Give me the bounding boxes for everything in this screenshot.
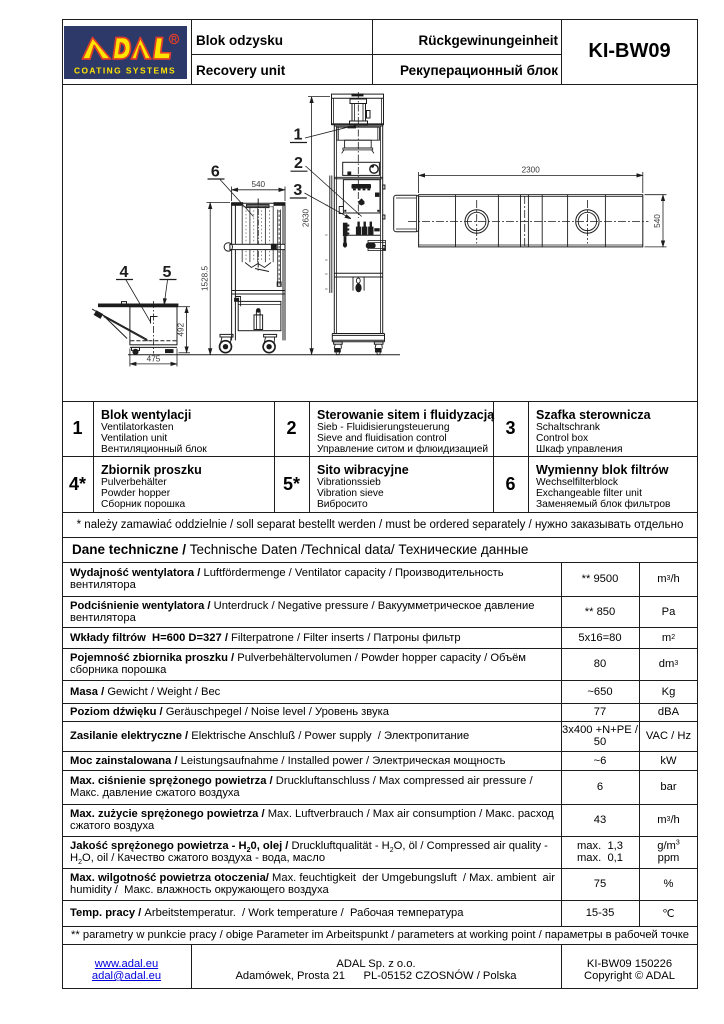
svg-text:3: 3 — [293, 182, 302, 199]
svg-text:540: 540 — [653, 214, 662, 228]
svg-text:6: 6 — [211, 164, 220, 181]
svg-text:5: 5 — [162, 264, 171, 281]
svg-text:2: 2 — [294, 155, 303, 172]
svg-text:2630: 2630 — [302, 208, 311, 227]
svg-text:492: 492 — [177, 322, 186, 336]
svg-text:1: 1 — [294, 127, 303, 144]
svg-text:540: 540 — [251, 180, 265, 189]
svg-text:2300: 2300 — [522, 166, 541, 175]
svg-text:R: R — [171, 35, 177, 44]
svg-text:475: 475 — [147, 355, 161, 364]
svg-text:1528.5: 1528.5 — [200, 266, 209, 291]
svg-text:4: 4 — [120, 264, 129, 281]
svg-text:COATING SYSTEMS: COATING SYSTEMS — [74, 66, 176, 76]
